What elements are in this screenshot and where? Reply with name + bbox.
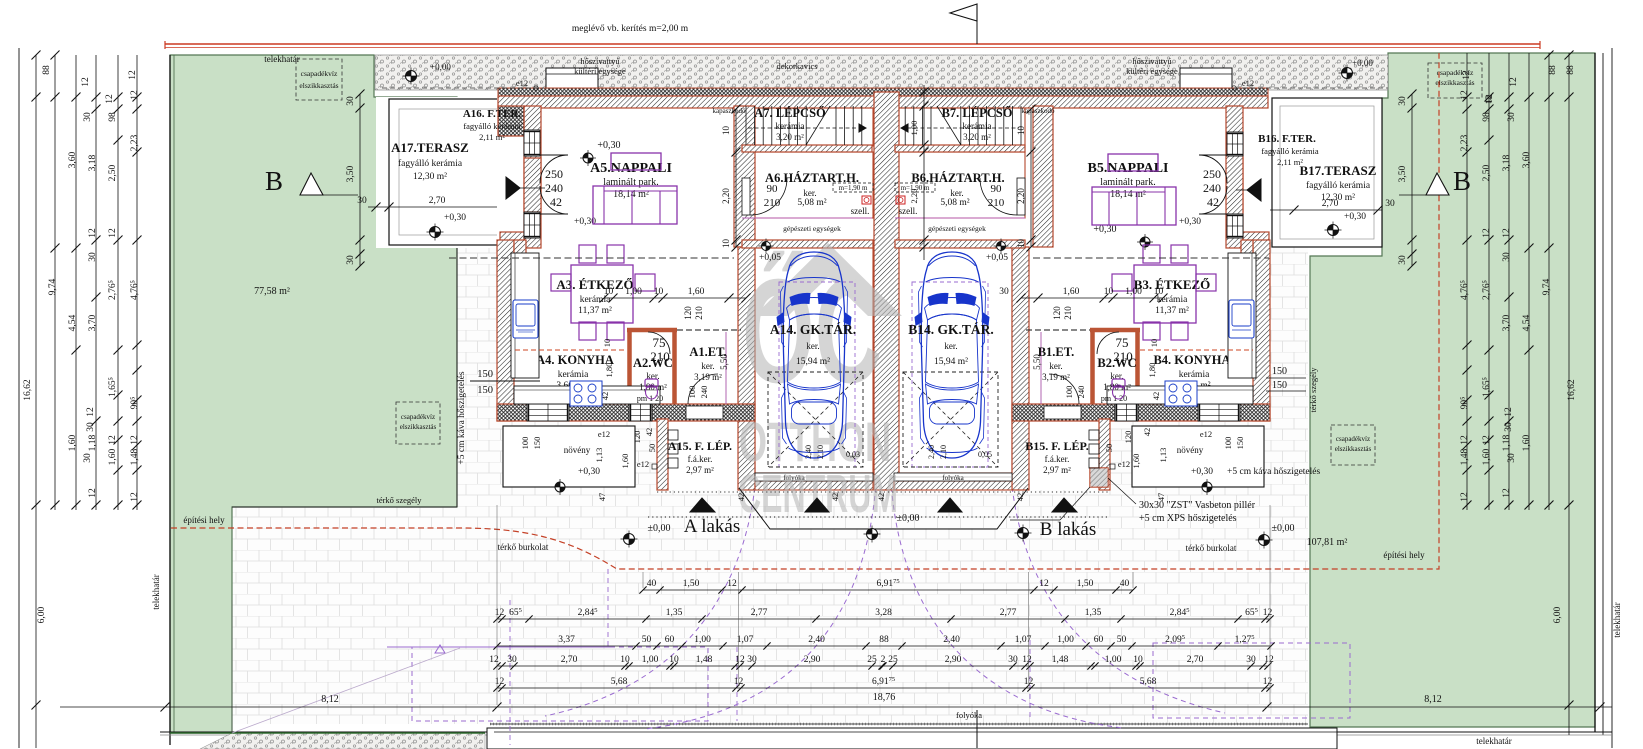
svg-text:2,20: 2,20 — [909, 189, 919, 204]
svg-text:250: 250 — [1203, 167, 1221, 181]
svg-text:120: 120 — [1052, 306, 1062, 320]
svg-text:12: 12 — [88, 488, 98, 498]
svg-text:12: 12 — [1482, 435, 1492, 445]
svg-text:telekhatár: telekhatár — [1612, 602, 1622, 637]
svg-text:+0,05: +0,05 — [986, 253, 1008, 263]
svg-text:2,50: 2,50 — [1482, 164, 1492, 181]
svg-text:3,28: 3,28 — [875, 608, 892, 618]
svg-text:2,70: 2,70 — [1187, 655, 1204, 665]
svg-text:12: 12 — [81, 77, 91, 87]
svg-text:1,80: 1,80 — [604, 363, 614, 378]
svg-text:30: 30 — [1385, 199, 1395, 209]
svg-text:2,76⁵: 2,76⁵ — [1482, 280, 1492, 300]
svg-text:90⁵: 90⁵ — [1460, 397, 1470, 410]
svg-text:6,00: 6,00 — [1553, 606, 1563, 623]
svg-text:60: 60 — [665, 635, 675, 645]
svg-text:e12: e12 — [1118, 459, 1130, 469]
svg-text:12: 12 — [1482, 228, 1492, 238]
svg-text:B3. ÉTKEZŐ: B3. ÉTKEZŐ — [1134, 277, 1211, 292]
svg-text:98: 98 — [108, 112, 118, 122]
svg-text:2,70: 2,70 — [561, 655, 578, 665]
svg-text:1,50: 1,50 — [683, 579, 700, 589]
svg-text:11,37 m²: 11,37 m² — [578, 306, 612, 316]
svg-text:+5 cm káva hőszigetelés: +5 cm káva hőszigetelés — [1227, 467, 1321, 477]
svg-text:B lakás: B lakás — [1040, 519, 1096, 540]
svg-text:120: 120 — [683, 306, 693, 320]
svg-text:2,70: 2,70 — [1322, 199, 1339, 209]
svg-text:25: 25 — [888, 655, 898, 665]
svg-text:2,77: 2,77 — [751, 608, 768, 618]
svg-text:A4. KONYHA: A4. KONYHA — [536, 353, 614, 367]
svg-text:1,18: 1,18 — [1502, 434, 1512, 451]
svg-text:B16. F.TER.: B16. F.TER. — [1258, 133, 1316, 145]
svg-text:240: 240 — [1076, 386, 1086, 399]
svg-text:kapaszkodó: kapaszkodó — [1021, 107, 1055, 115]
svg-text:1,00: 1,00 — [1057, 635, 1074, 645]
svg-text:3,60: 3,60 — [1522, 151, 1532, 168]
svg-text:150: 150 — [477, 385, 493, 396]
svg-text:f.á.ker.: f.á.ker. — [1045, 454, 1070, 464]
svg-text:8,12: 8,12 — [321, 694, 339, 705]
svg-text:10: 10 — [654, 287, 664, 297]
svg-text:90: 90 — [767, 183, 779, 195]
svg-text:3,20 m²: 3,20 m² — [776, 132, 804, 142]
svg-text:12,30 m²: 12,30 m² — [413, 172, 447, 182]
svg-text:B4. KONYHA: B4. KONYHA — [1153, 353, 1230, 367]
svg-text:kerámia: kerámia — [963, 121, 992, 131]
svg-text:150: 150 — [1272, 366, 1287, 377]
svg-text:1,60: 1,60 — [1063, 287, 1080, 297]
svg-text:1,60: 1,60 — [688, 287, 705, 297]
svg-text:1,60: 1,60 — [68, 434, 78, 451]
svg-text:2,20: 2,20 — [1016, 188, 1026, 204]
svg-text:12: 12 — [130, 435, 140, 445]
svg-text:42: 42 — [830, 493, 840, 502]
svg-text:3,18: 3,18 — [1502, 154, 1512, 171]
svg-text:gépészeti egységek: gépészeti egységek — [783, 224, 841, 233]
svg-text:1,60: 1,60 — [1482, 448, 1492, 465]
svg-text:10: 10 — [620, 655, 630, 665]
svg-text:±0,00: ±0,00 — [1272, 523, 1295, 534]
svg-text:ker.: ker. — [701, 361, 714, 371]
svg-text:12: 12 — [128, 70, 138, 80]
svg-text:1,65⁵: 1,65⁵ — [108, 377, 118, 397]
svg-text:30: 30 — [1008, 655, 1018, 665]
svg-text:2,40: 2,40 — [927, 445, 936, 459]
svg-text:42: 42 — [1207, 195, 1219, 209]
svg-text:2: 2 — [881, 655, 886, 665]
svg-text:50: 50 — [642, 635, 652, 645]
svg-text:12: 12 — [86, 407, 96, 417]
svg-text:40: 40 — [647, 579, 657, 589]
svg-text:3,37: 3,37 — [558, 635, 575, 645]
svg-text:2,10: 2,10 — [816, 445, 825, 459]
svg-text:B7. LÉPCSŐ: B7. LÉPCSŐ — [942, 105, 1013, 120]
svg-text:240: 240 — [545, 181, 563, 195]
svg-text:100: 100 — [687, 386, 697, 399]
svg-text:e12: e12 — [637, 459, 649, 469]
svg-text:10: 10 — [602, 339, 612, 348]
svg-text:1,48: 1,48 — [696, 655, 713, 665]
svg-text:30: 30 — [83, 453, 93, 463]
svg-text:150: 150 — [1272, 380, 1287, 391]
svg-text:folyóka: folyóka — [942, 474, 964, 482]
svg-text:1,48: 1,48 — [1460, 448, 1470, 465]
svg-text:térkő burkolat: térkő burkolat — [498, 542, 549, 552]
svg-text:30: 30 — [83, 112, 93, 122]
svg-text:42: 42 — [600, 392, 610, 401]
svg-text:25: 25 — [867, 655, 877, 665]
svg-text:5,68: 5,68 — [1140, 677, 1157, 687]
svg-text:csapadékvíz: csapadékvíz — [401, 413, 435, 421]
svg-text:ker.: ker. — [950, 188, 963, 198]
svg-text:elszikkasztás: elszikkasztás — [299, 81, 338, 90]
svg-text:térkő szegély: térkő szegély — [376, 495, 422, 505]
svg-text:2,23: 2,23 — [1460, 134, 1470, 151]
svg-text:12: 12 — [1263, 608, 1273, 618]
svg-text:90⁵: 90⁵ — [130, 397, 140, 410]
svg-text:30: 30 — [1504, 422, 1514, 432]
svg-text:88: 88 — [1548, 65, 1558, 75]
svg-text:1,35: 1,35 — [1085, 608, 1102, 618]
svg-text:1,07: 1,07 — [1015, 635, 1032, 645]
svg-text:kapaszkodó: kapaszkodó — [712, 107, 746, 115]
svg-text:88: 88 — [1566, 65, 1576, 75]
svg-text:1,60: 1,60 — [1131, 454, 1141, 469]
svg-text:1,00: 1,00 — [1105, 655, 1122, 665]
svg-text:kültéri egysége: kültéri egysége — [1126, 66, 1178, 76]
svg-text:A lakás: A lakás — [684, 516, 740, 537]
svg-text:építési hely: építési hely — [183, 515, 225, 525]
svg-text:12: 12 — [1509, 77, 1519, 87]
svg-text:240: 240 — [1203, 181, 1221, 195]
svg-text:ker.: ker. — [944, 341, 957, 351]
svg-text:12: 12 — [1460, 492, 1470, 502]
svg-text:elszikkasztás: elszikkasztás — [400, 423, 437, 431]
svg-text:kerámia: kerámia — [776, 121, 805, 131]
svg-text:50: 50 — [1104, 444, 1114, 453]
svg-text:ker.: ker. — [1049, 361, 1062, 371]
svg-text:12: 12 — [108, 435, 118, 445]
svg-text:e12: e12 — [516, 78, 528, 88]
svg-text:12: 12 — [1460, 90, 1470, 100]
svg-text:5,68: 5,68 — [611, 677, 628, 687]
svg-text:A16. F.TER.: A16. F.TER. — [463, 108, 522, 120]
svg-text:építési hely: építési hely — [1383, 550, 1425, 560]
svg-text:30: 30 — [747, 655, 757, 665]
svg-text:60: 60 — [1094, 635, 1104, 645]
svg-text:30: 30 — [346, 96, 356, 106]
svg-text:2,76⁵: 2,76⁵ — [108, 280, 118, 300]
svg-text:30: 30 — [1502, 252, 1512, 262]
svg-text:+0,00: +0,00 — [1352, 58, 1373, 68]
svg-text:dekorkavics: dekorkavics — [776, 61, 817, 71]
svg-text:150: 150 — [1235, 437, 1245, 450]
svg-text:1,60: 1,60 — [108, 448, 118, 465]
svg-text:0,05: 0,05 — [978, 450, 992, 459]
svg-text:meglévő vb. kerítés m=2,00 m: meglévő vb. kerítés m=2,00 m — [572, 24, 689, 34]
svg-text:1,65⁵: 1,65⁵ — [1482, 377, 1492, 397]
svg-text:szell.: szell. — [899, 206, 918, 216]
svg-text:ker.: ker. — [803, 188, 816, 198]
svg-text:12: 12 — [1263, 677, 1273, 687]
svg-text:2,40: 2,40 — [804, 445, 813, 459]
svg-text:+0,30: +0,30 — [444, 213, 466, 223]
svg-text:B: B — [1453, 166, 1471, 196]
svg-text:12: 12 — [1022, 655, 1032, 665]
svg-text:9,74: 9,74 — [1542, 278, 1552, 295]
svg-text:10: 10 — [604, 287, 614, 297]
svg-text:f.á.ker.: f.á.ker. — [688, 454, 713, 464]
svg-text:1,48: 1,48 — [130, 448, 140, 465]
svg-text:2,90: 2,90 — [945, 655, 962, 665]
svg-text:fagyálló kerámia: fagyálló kerámia — [463, 121, 521, 131]
svg-text:3,19 m²: 3,19 m² — [694, 372, 722, 382]
svg-text:98: 98 — [1482, 112, 1492, 122]
svg-text:42: 42 — [1142, 428, 1152, 437]
svg-text:+0,30: +0,30 — [1179, 217, 1201, 227]
svg-text:A17.TERASZ: A17.TERASZ — [391, 140, 469, 155]
svg-text:15,94 m²: 15,94 m² — [796, 357, 830, 367]
svg-text:50: 50 — [647, 444, 657, 453]
svg-text:30: 30 — [507, 655, 517, 665]
svg-text:30: 30 — [1507, 112, 1517, 122]
svg-text:1,00: 1,00 — [642, 655, 659, 665]
svg-text:5,08 m²: 5,08 m² — [797, 198, 826, 208]
svg-text:2,77: 2,77 — [1000, 608, 1017, 618]
svg-text:100: 100 — [1064, 386, 1074, 399]
svg-text:2,11 m²: 2,11 m² — [479, 132, 505, 142]
svg-text:5,08 m²: 5,08 m² — [940, 198, 969, 208]
svg-text:210: 210 — [694, 306, 704, 320]
svg-text:+0,05: +0,05 — [759, 253, 781, 263]
svg-text:12: 12 — [1460, 435, 1470, 445]
svg-text:2,10: 2,10 — [939, 445, 948, 459]
svg-text:10: 10 — [1154, 287, 1164, 297]
svg-text:1,07: 1,07 — [737, 635, 754, 645]
svg-text:szell.: szell. — [851, 206, 870, 216]
svg-text:12: 12 — [1504, 407, 1514, 417]
svg-text:+0,30: +0,30 — [1344, 212, 1366, 222]
svg-text:+0,00: +0,00 — [430, 62, 451, 72]
svg-text:12: 12 — [495, 608, 505, 618]
svg-text:12: 12 — [1502, 228, 1512, 238]
svg-text:210: 210 — [988, 197, 1005, 209]
svg-text:10: 10 — [721, 239, 731, 249]
svg-text:40: 40 — [1120, 579, 1130, 589]
svg-text:hőszivattyú: hőszivattyú — [580, 56, 620, 66]
svg-text:42: 42 — [644, 428, 654, 437]
svg-text:10: 10 — [1133, 655, 1143, 665]
svg-text:15,94 m²: 15,94 m² — [934, 357, 968, 367]
svg-text:1,13: 1,13 — [1158, 448, 1168, 463]
svg-text:hőszivattyú: hőszivattyú — [1132, 56, 1172, 66]
svg-text:10: 10 — [669, 655, 679, 665]
svg-text:10: 10 — [1104, 287, 1114, 297]
svg-text:12: 12 — [735, 655, 745, 665]
svg-text:1,50: 1,50 — [1077, 579, 1094, 589]
svg-text:30: 30 — [1398, 96, 1408, 106]
svg-text:ker.: ker. — [806, 341, 819, 351]
svg-text:térkő szegély: térkő szegély — [1308, 367, 1318, 413]
svg-text:2,97 m²: 2,97 m² — [1043, 465, 1071, 475]
svg-text:1,35: 1,35 — [666, 608, 683, 618]
svg-text:fagyálló kerámia: fagyálló kerámia — [1261, 146, 1319, 156]
svg-text:1,18: 1,18 — [88, 434, 98, 451]
svg-text:m=1,90 m: m=1,90 m — [839, 184, 868, 192]
svg-text:150: 150 — [532, 437, 542, 450]
svg-text:18,76: 18,76 — [873, 692, 896, 703]
svg-text:10: 10 — [1149, 339, 1159, 348]
svg-text:kerámia: kerámia — [1179, 370, 1210, 380]
svg-text:térkő burkolat: térkő burkolat — [1186, 543, 1237, 553]
svg-text:B1.ET.: B1.ET. — [1038, 345, 1075, 359]
svg-text:CENTRUM: CENTRUM — [738, 464, 898, 524]
svg-text:B: B — [265, 166, 283, 196]
svg-text:50: 50 — [1117, 635, 1127, 645]
svg-text:10: 10 — [721, 126, 731, 136]
svg-text:elszikkasztás: elszikkasztás — [1335, 445, 1372, 453]
svg-text:100: 100 — [1223, 437, 1233, 450]
svg-text:30: 30 — [1507, 453, 1517, 463]
svg-text:11,37 m²: 11,37 m² — [1155, 306, 1189, 316]
svg-text:3,70: 3,70 — [1502, 314, 1512, 331]
svg-text:42: 42 — [736, 493, 746, 502]
svg-text:12: 12 — [1039, 579, 1049, 589]
svg-text:telekhatár: telekhatár — [151, 574, 161, 609]
svg-text:90: 90 — [991, 183, 1003, 195]
svg-text:12: 12 — [88, 228, 98, 238]
svg-text:42: 42 — [1015, 493, 1025, 502]
svg-text:B15. F. LÉP.: B15. F. LÉP. — [1025, 439, 1088, 453]
svg-text:csapadékvíz: csapadékvíz — [301, 69, 338, 78]
svg-text:88: 88 — [42, 65, 52, 75]
svg-text:47: 47 — [597, 493, 607, 502]
svg-text:12: 12 — [489, 655, 499, 665]
svg-text:2,70: 2,70 — [429, 196, 446, 206]
svg-text:1,00: 1,00 — [694, 635, 711, 645]
svg-text:5,50: 5,50 — [1032, 354, 1042, 370]
svg-text:telekhatár: telekhatár — [1476, 736, 1511, 746]
svg-text:210: 210 — [1113, 349, 1133, 364]
svg-text:4,76⁵: 4,76⁵ — [1460, 280, 1470, 300]
svg-text:12: 12 — [105, 94, 115, 104]
svg-text:75: 75 — [653, 335, 666, 350]
svg-text:B5.NAPPALI: B5.NAPPALI — [1087, 161, 1168, 176]
svg-text:12: 12 — [1483, 96, 1493, 105]
svg-text:kerámia: kerámia — [558, 370, 589, 380]
svg-text:240: 240 — [699, 386, 709, 399]
svg-text:210: 210 — [650, 349, 670, 364]
svg-text:75: 75 — [1116, 335, 1129, 350]
svg-text:e12: e12 — [598, 429, 610, 439]
svg-text:3,20 m²: 3,20 m² — [963, 132, 991, 142]
svg-text:42: 42 — [1151, 392, 1161, 401]
svg-text:fagyálló kerámia: fagyálló kerámia — [1306, 180, 1371, 191]
svg-text:3,70: 3,70 — [88, 314, 98, 331]
svg-text:42: 42 — [550, 195, 562, 209]
svg-text:1,48: 1,48 — [1052, 655, 1069, 665]
svg-text:3,18: 3,18 — [88, 154, 98, 171]
svg-text:107,81 m²: 107,81 m² — [1307, 537, 1348, 548]
svg-text:9,74: 9,74 — [48, 278, 58, 295]
svg-text:2,50: 2,50 — [108, 164, 118, 181]
svg-text:10: 10 — [1016, 239, 1026, 249]
svg-text:A7. LÉPCSŐ: A7. LÉPCSŐ — [754, 105, 826, 120]
svg-text:B14. GK.TÁR.: B14. GK.TÁR. — [908, 322, 994, 337]
svg-text:3,19 m²: 3,19 m² — [1042, 372, 1070, 382]
svg-text:2,20: 2,20 — [721, 188, 731, 204]
svg-text:+5 cm XPS hőszigetelés: +5 cm XPS hőszigetelés — [1139, 513, 1237, 524]
svg-text:1,00: 1,00 — [1125, 287, 1142, 297]
svg-text:12: 12 — [1502, 488, 1512, 498]
svg-text:3,60: 3,60 — [68, 151, 78, 168]
svg-text:+0,30: +0,30 — [597, 140, 620, 151]
svg-text:210: 210 — [1063, 306, 1073, 320]
svg-text:10: 10 — [1016, 126, 1026, 136]
svg-text:150: 150 — [477, 369, 493, 380]
svg-text:30: 30 — [88, 252, 98, 262]
svg-text:2,90: 2,90 — [804, 655, 821, 665]
svg-text:5,50: 5,50 — [719, 354, 729, 370]
svg-text:1,60: 1,60 — [620, 454, 630, 469]
svg-text:47: 47 — [1156, 493, 1166, 502]
svg-text:2,97 m²: 2,97 m² — [686, 465, 714, 475]
svg-text:30: 30 — [1398, 255, 1408, 265]
svg-text:42: 42 — [876, 493, 886, 502]
svg-text:±0,00: ±0,00 — [897, 513, 920, 524]
svg-text:88: 88 — [879, 635, 889, 645]
svg-text:4,76⁵: 4,76⁵ — [130, 280, 140, 300]
svg-text:30: 30 — [86, 422, 96, 432]
svg-text:2,23: 2,23 — [130, 134, 140, 151]
svg-text:+5 cm káva hőszigetelés: +5 cm káva hőszigetelés — [457, 371, 467, 465]
svg-text:2,11 m²: 2,11 m² — [1277, 157, 1303, 167]
svg-text:3,50: 3,50 — [346, 165, 356, 182]
svg-text:e12: e12 — [1200, 429, 1212, 439]
svg-text:+0,30: +0,30 — [1191, 467, 1213, 477]
svg-text:+0,30: +0,30 — [578, 467, 600, 477]
svg-text:fagyálló kerámia: fagyálló kerámia — [398, 158, 463, 169]
svg-text:±0,00: ±0,00 — [648, 523, 671, 534]
svg-text:12: 12 — [1264, 655, 1274, 665]
svg-text:30: 30 — [346, 255, 356, 265]
svg-text:4,54: 4,54 — [68, 314, 78, 331]
svg-text:18,14 m²: 18,14 m² — [1110, 189, 1146, 200]
svg-text:12: 12 — [1462, 70, 1472, 80]
svg-text:folyóka: folyóka — [956, 710, 982, 720]
svg-text:30: 30 — [357, 196, 367, 206]
svg-text:növény: növény — [1177, 445, 1204, 455]
svg-text:250: 250 — [545, 167, 563, 181]
svg-text:16,62: 16,62 — [1567, 379, 1577, 401]
svg-text:100: 100 — [520, 437, 530, 450]
svg-text:kültéri egysége: kültéri egysége — [574, 66, 626, 76]
svg-text:1,00: 1,00 — [909, 121, 919, 136]
svg-text:e12: e12 — [1242, 78, 1254, 88]
svg-text:A5.NAPPALI: A5.NAPPALI — [590, 161, 672, 176]
svg-text:16,62: 16,62 — [23, 379, 33, 401]
svg-text:A3. ÉTKEZŐ: A3. ÉTKEZŐ — [556, 277, 633, 292]
svg-text:120: 120 — [1123, 431, 1133, 444]
svg-text:3,50: 3,50 — [1398, 165, 1408, 182]
svg-text:2,40: 2,40 — [943, 635, 960, 645]
svg-text:A15. F. LÉP.: A15. F. LÉP. — [668, 439, 732, 453]
svg-text:12: 12 — [130, 90, 140, 100]
svg-text:12: 12 — [108, 228, 118, 238]
svg-text:gépészeti egységek: gépészeti egységek — [928, 224, 986, 233]
svg-text:2,40: 2,40 — [808, 635, 825, 645]
